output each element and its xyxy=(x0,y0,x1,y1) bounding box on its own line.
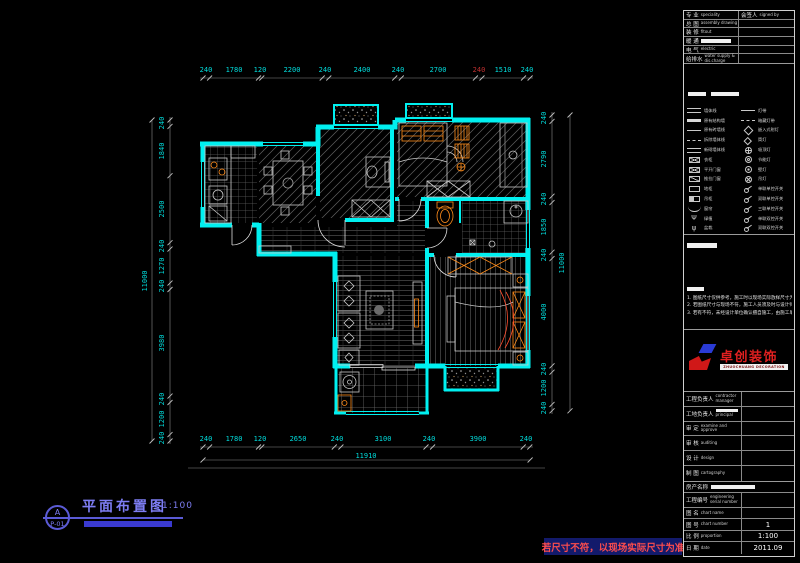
personnel-en: auditing xyxy=(701,441,717,446)
cad-canvas: 240 1780 120 2200 240 2400 240 2700 240 … xyxy=(0,0,800,563)
signoff-row-en: water supply & dis.charge xyxy=(705,54,738,63)
dim-label-overall: 11910 xyxy=(355,452,376,460)
wall-dash-line-icon xyxy=(686,140,702,141)
company-logo-section: 卓创装饰 ZHUOCHUANG DECORATION xyxy=(684,330,794,392)
company-subtitle: ZHUOCHUANG DECORATION xyxy=(723,365,785,369)
signoff-row-cn: 电 气 xyxy=(686,46,699,54)
redaction-bar xyxy=(711,485,755,489)
downlight-icon xyxy=(740,138,756,144)
detail-letter: A xyxy=(47,508,68,517)
note-line: 1. 图纸尺寸仅供参考，施工时以现场实际放样尺寸为准。 xyxy=(687,295,792,302)
company-logo-icon xyxy=(689,344,715,370)
company-subtitle-bar: ZHUOCHUANG DECORATION xyxy=(720,364,788,370)
dim-label: 120 xyxy=(254,66,267,74)
project-value: 1 xyxy=(742,521,794,529)
project-cn: 工程编号 xyxy=(686,496,708,504)
project-cn: 比 例 xyxy=(686,532,699,540)
legend-right-column: 灯带 暗藏灯带 嵌入式射灯 筒灯 吸顶灯 节能灯 壁灯 吊灯 单联单控开关 双联… xyxy=(740,106,794,232)
personnel-en: contractor manager xyxy=(716,394,741,403)
personnel-cn: 审 定 xyxy=(686,424,699,432)
personnel-cn: 设 计 xyxy=(686,454,699,462)
floor-plan-drawing: 240 1780 120 2200 240 2400 240 2700 240 … xyxy=(0,0,683,563)
property-name-label: 房产名称 xyxy=(686,483,708,491)
project-cn: 日 期 xyxy=(686,544,699,552)
detail-bubble: A P-01 xyxy=(45,505,70,530)
dim-label: 1200 xyxy=(158,411,166,428)
switch-icon xyxy=(740,224,756,232)
note-line: 2. 若图纸尺寸与现场不符，施工人员须及时与设计师联系。 xyxy=(687,302,792,309)
signoff-row-cn: 暖 通 xyxy=(686,37,699,45)
dim-label: 240 xyxy=(158,393,166,406)
dim-label: 240 xyxy=(520,435,533,443)
dim-label: 240 xyxy=(158,280,166,293)
dim-label: 240 xyxy=(158,117,166,130)
dim-label: 3900 xyxy=(470,435,487,443)
signoff-row-cn: 给排水 xyxy=(686,55,703,63)
dim-label: 240 xyxy=(158,240,166,253)
personnel-table: 工程负责人 contractor manager 工地负责人 principal… xyxy=(684,392,794,482)
project-en: chart name xyxy=(701,511,724,516)
x-box-icon xyxy=(686,167,702,173)
wardrobe-box-icon xyxy=(686,157,702,163)
signoff-row-en: assembly drawing xyxy=(701,21,737,26)
project-value: 1:100 xyxy=(742,532,794,540)
slash-box-icon xyxy=(686,176,702,182)
dim-label: 1780 xyxy=(226,435,243,443)
dim-label: 4000 xyxy=(540,304,548,321)
signoff-col1-en: speciality xyxy=(701,13,720,18)
personnel-en: cartography xyxy=(701,471,725,476)
switch-icon xyxy=(740,185,756,193)
dim-label: 240 xyxy=(319,66,332,74)
stamp-strip xyxy=(684,64,794,104)
half-box-icon xyxy=(686,196,702,202)
wall-line-icon xyxy=(686,130,702,131)
personnel-en: principal xyxy=(716,413,738,418)
signoff-col2-en: signed by xyxy=(760,13,779,18)
dim-label: 240 xyxy=(540,249,548,262)
dim-label: 3980 xyxy=(158,335,166,352)
switch-icon xyxy=(740,195,756,203)
switch-icon xyxy=(740,205,756,213)
dim-label: 240 xyxy=(540,363,548,376)
title-underline-bar xyxy=(84,521,172,527)
sheet-number: P-01 xyxy=(47,520,68,528)
dim-label: 240 xyxy=(331,435,344,443)
wall-lamp-icon xyxy=(740,166,756,173)
project-en: date xyxy=(701,546,710,551)
project-info-table: 房产名称 工程编号 engineering serial number 图 名 … xyxy=(684,482,794,554)
signoff-row-en: fitout xyxy=(701,30,712,35)
dim-label: 240 xyxy=(423,435,436,443)
signoff-row-cn: 装 修 xyxy=(686,28,699,36)
warning-text: 若尺寸不符，以现场实际尺寸为准 xyxy=(542,540,685,554)
hidden-strip-icon xyxy=(740,120,756,121)
plain-box-icon xyxy=(686,186,702,192)
redaction-bar xyxy=(687,243,717,248)
redaction-bar xyxy=(701,39,731,43)
dim-label: 2700 xyxy=(430,66,447,74)
dim-label: 2790 xyxy=(540,151,548,168)
project-cn: 图 号 xyxy=(686,521,699,529)
light-strip-icon xyxy=(740,110,756,111)
switch-icon xyxy=(740,215,756,223)
legend-left-column: 墙体线 原有结构墙 原有砖墙线 拆除墙体线 新砌墙体线 衣柜 平开门窗 推拉门窗… xyxy=(686,106,740,232)
project-en: proportion xyxy=(701,534,722,539)
energy-lamp-icon xyxy=(740,156,756,163)
dim-label: 240 xyxy=(540,193,548,206)
dim-label: 1270 xyxy=(158,258,166,275)
dim-label: 120 xyxy=(254,435,267,443)
project-en: engineering serial number xyxy=(710,495,741,504)
personnel-en: design xyxy=(701,456,714,461)
dim-label: 2200 xyxy=(284,66,301,74)
dim-label-overall: 11000 xyxy=(141,270,149,291)
dim-label: 1780 xyxy=(226,66,243,74)
plant-icon: Ψ xyxy=(686,215,702,222)
notes-heading-bar xyxy=(687,287,704,291)
redaction-bar xyxy=(711,92,739,96)
dim-label: 240 xyxy=(200,435,213,443)
title-block: 专 业 speciality 会签人 signed by 总 图 assembl… xyxy=(683,10,795,557)
drawing-scale: 1:100 xyxy=(162,501,193,511)
dim-label: 240 xyxy=(540,402,548,415)
chandelier-icon xyxy=(740,176,756,183)
drawing-title: 平面布置图 xyxy=(82,496,167,516)
signoff-row-cn: 总 图 xyxy=(686,20,699,28)
project-en: chart number xyxy=(701,522,728,527)
signoff-table: 专 业 speciality 会签人 signed by 总 图 assembl… xyxy=(684,11,794,64)
dimension-warning-banner: 若尺寸不符，以现场实际尺寸为准 xyxy=(544,538,682,555)
dim-label: 1200 xyxy=(540,380,548,397)
signoff-col2-cn: 会签人 xyxy=(741,11,758,19)
personnel-cn: 制 图 xyxy=(686,469,699,477)
dim-label: 1840 xyxy=(158,143,166,160)
spotlight-icon xyxy=(740,127,756,134)
dim-label: 1510 xyxy=(495,66,512,74)
personnel-cn: 审 核 xyxy=(686,439,699,447)
wall-thick-line-icon xyxy=(686,119,702,122)
project-cn: 图 名 xyxy=(686,509,699,517)
dim-label: 240 xyxy=(200,66,213,74)
note-line: 3. 若有不符，未经设计单位确认擅自施工，由施工单位负责。 xyxy=(687,310,792,317)
project-value: 2011.09 xyxy=(742,544,794,552)
dim-label-overall: 11000 xyxy=(558,252,566,273)
dim-label: 240 xyxy=(540,112,548,125)
dim-label: 240 xyxy=(392,66,405,74)
dim-label: 2650 xyxy=(290,435,307,443)
curtain-icon xyxy=(686,206,702,212)
dim-label: 240 xyxy=(158,432,166,445)
wall-new-line-icon xyxy=(686,148,702,153)
personnel-cn: 工地负责人 xyxy=(686,410,714,418)
redaction-bar xyxy=(688,92,706,96)
dim-label: 240 xyxy=(521,66,534,74)
sheet-label: A P-01 平面布置图 1:100 xyxy=(40,494,340,539)
dim-label: 1850 xyxy=(540,219,548,236)
dim-label: 3100 xyxy=(375,435,392,443)
legend: 墙体线 原有结构墙 原有砖墙线 拆除墙体线 新砌墙体线 衣柜 平开门窗 推拉门窗… xyxy=(684,104,794,235)
signoff-row-en: electric xyxy=(701,47,716,52)
notes-section: 1. 图纸尺寸仅供参考，施工时以现场实际放样尺寸为准。 2. 若图纸尺寸与现场不… xyxy=(684,235,794,330)
signoff-col1-cn: 专 业 xyxy=(686,11,699,19)
dim-label: 2400 xyxy=(354,66,371,74)
ceiling-lamp-icon xyxy=(740,147,756,154)
dim-label: 2500 xyxy=(158,201,166,218)
personnel-cn: 工程负责人 xyxy=(686,395,714,403)
dim-label-alert: 240 xyxy=(473,66,486,74)
wall-double-line-icon xyxy=(686,108,702,113)
plant-icon: ψ xyxy=(686,225,702,232)
personnel-en: examine and approve xyxy=(701,424,741,433)
company-name: 卓创装饰 xyxy=(720,346,778,365)
